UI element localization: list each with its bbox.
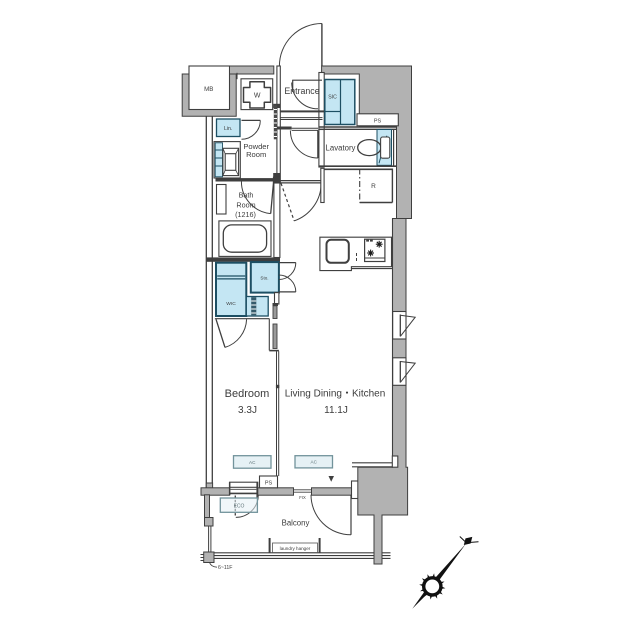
svg-text:6~11F: 6~11F [218,565,232,571]
svg-text:PS: PS [265,481,273,487]
svg-text:Balcony: Balcony [282,518,310,527]
svg-text:W: W [254,92,261,99]
svg-text:Lavatory: Lavatory [326,143,356,152]
svg-text:Sto.: Sto. [260,276,268,281]
svg-text:Entrance: Entrance [284,86,319,96]
svg-text:3.3J: 3.3J [238,405,257,416]
svg-text:SIC: SIC [328,94,337,100]
svg-text:Room: Room [236,201,255,210]
svg-text:Bath: Bath [239,191,254,200]
svg-text:Room: Room [246,150,266,159]
svg-text:Living Dining・Kitchen: Living Dining・Kitchen [285,389,386,400]
svg-text:FIX: FIX [299,495,306,500]
svg-text:PS: PS [374,118,382,124]
svg-text:(1216): (1216) [235,210,256,219]
svg-text:ECO: ECO [234,503,245,509]
svg-text:AC: AC [249,460,256,465]
svg-text:Bedroom: Bedroom [225,388,270,400]
svg-text:R: R [371,183,376,190]
svg-text:WIC: WIC [226,301,236,307]
svg-text:AC: AC [311,460,318,465]
svg-text:11.1J: 11.1J [324,405,348,416]
svg-text:MB: MB [204,86,213,93]
svg-text:Lin.: Lin. [224,126,232,132]
svg-text:laundry hanger: laundry hanger [280,546,311,551]
